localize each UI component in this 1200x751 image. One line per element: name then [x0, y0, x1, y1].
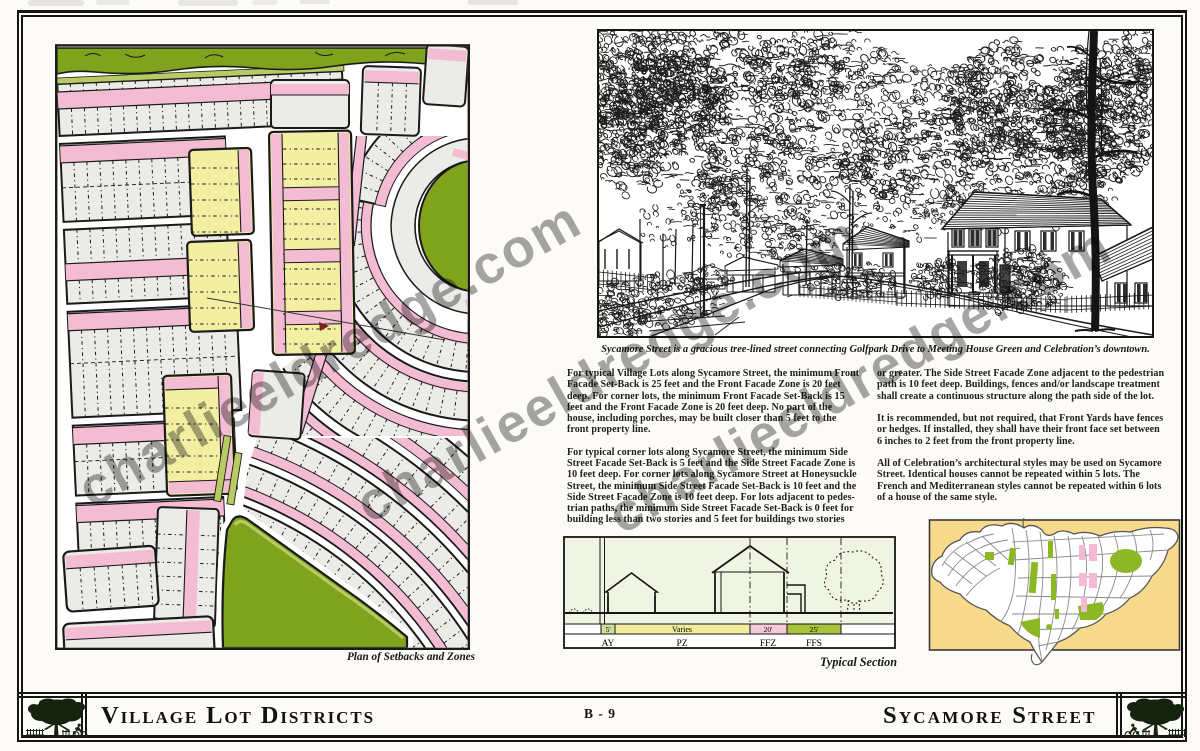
svg-text:25': 25' — [810, 625, 820, 634]
svg-text:Varies: Varies — [672, 625, 692, 634]
svg-text:AY: AY — [602, 639, 615, 649]
svg-text:FFS: FFS — [806, 639, 822, 649]
svg-text:5': 5' — [605, 625, 611, 634]
svg-text:20': 20' — [764, 625, 774, 634]
svg-text:FFZ: FFZ — [760, 639, 777, 649]
svg-text:PZ: PZ — [676, 639, 687, 649]
